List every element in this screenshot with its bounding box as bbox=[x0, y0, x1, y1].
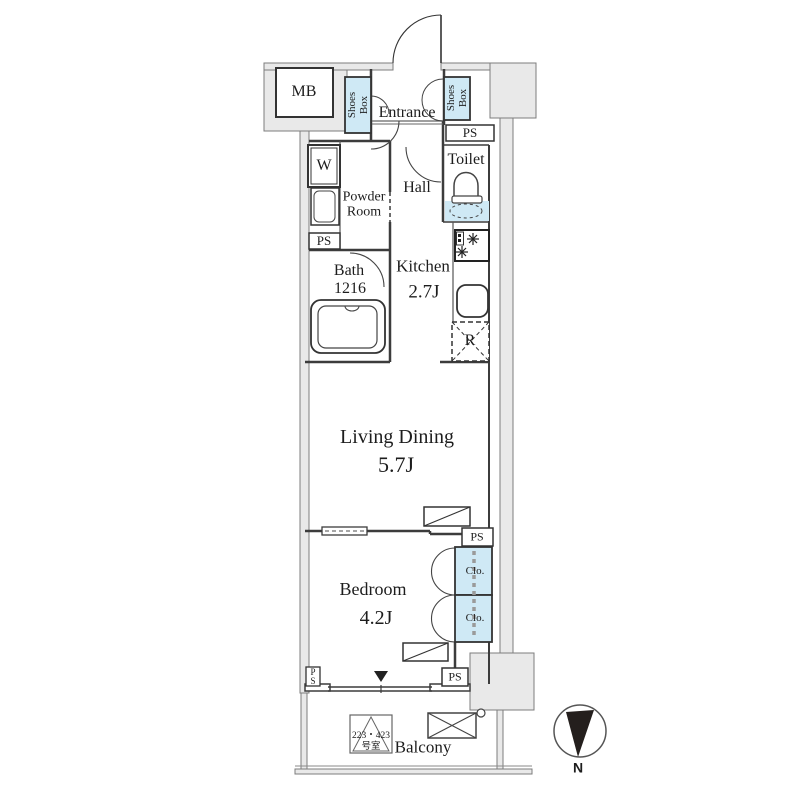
label-mb: MB bbox=[292, 83, 317, 101]
label-kitchen: Kitchen bbox=[396, 258, 450, 277]
triangle-marker-icon bbox=[374, 671, 388, 682]
label-bath: Bath bbox=[334, 262, 364, 280]
label-toilet: Toilet bbox=[447, 151, 484, 169]
balcony-left-post bbox=[301, 693, 307, 770]
label-kitchen-size: 2.7J bbox=[408, 283, 439, 304]
closet-door-swing-arc bbox=[432, 595, 456, 642]
label-room-sign-unit: 号室 bbox=[361, 742, 380, 752]
balcony-drain bbox=[477, 709, 485, 717]
label-living-dining: Living Dining bbox=[340, 426, 454, 448]
toilet-door-swing-arc bbox=[406, 147, 441, 182]
label-washer: W bbox=[316, 157, 331, 175]
entrance-door-swing-arc bbox=[393, 15, 441, 63]
exterior-walls bbox=[264, 63, 536, 774]
compass-icon bbox=[554, 705, 606, 757]
label-bedroom: Bedroom bbox=[340, 580, 407, 600]
shoes-box-door-arc bbox=[422, 79, 443, 100]
toilet-seat bbox=[452, 196, 482, 203]
label-living-dining-size: 5.7J bbox=[378, 453, 414, 477]
label-ps-bottom-left: PS bbox=[309, 668, 317, 686]
balcony-ac-unit-icon bbox=[428, 709, 485, 738]
label-ps-mid: PS bbox=[470, 530, 483, 543]
wall-right-column bbox=[500, 118, 513, 653]
label-bedroom-size: 4.2J bbox=[360, 607, 393, 629]
label-ps-bottom-right: PS bbox=[448, 670, 461, 683]
closet-door-swing-arc bbox=[432, 548, 456, 595]
label-room-sign-numbers: 223・423 bbox=[352, 731, 390, 741]
balcony-right-post bbox=[497, 710, 503, 770]
label-ps-top: PS bbox=[463, 126, 477, 140]
kitchen-sink bbox=[457, 285, 488, 317]
balcony-bottom-rail bbox=[295, 769, 532, 774]
wall-top-right-block bbox=[490, 63, 536, 118]
wall-bottom-right-block bbox=[470, 653, 534, 710]
bedroom-fixtures bbox=[306, 547, 492, 686]
wall-left-column bbox=[300, 131, 309, 693]
label-balcony: Balcony bbox=[395, 739, 452, 758]
hall-door-swing-arc bbox=[371, 121, 399, 149]
label-closet-bottom: Clo. bbox=[466, 612, 485, 624]
label-entrance: Entrance bbox=[379, 104, 436, 122]
label-hall: Hall bbox=[403, 179, 431, 197]
label-closet-top: Clo. bbox=[466, 565, 485, 577]
label-ps-left: PS bbox=[317, 234, 331, 248]
label-shoes-box-right: Shoes Box bbox=[445, 78, 469, 118]
label-shoes-box-left: Shoes Box bbox=[346, 85, 370, 125]
label-compass-north: N bbox=[573, 760, 583, 775]
label-bath-size: 1216 bbox=[334, 280, 366, 298]
label-powder-room: Powder Room bbox=[333, 190, 395, 221]
label-refrigerator: R bbox=[465, 332, 476, 350]
floor-plan: MB Shoes Box Shoes Box Entrance PS Toile… bbox=[0, 0, 800, 800]
